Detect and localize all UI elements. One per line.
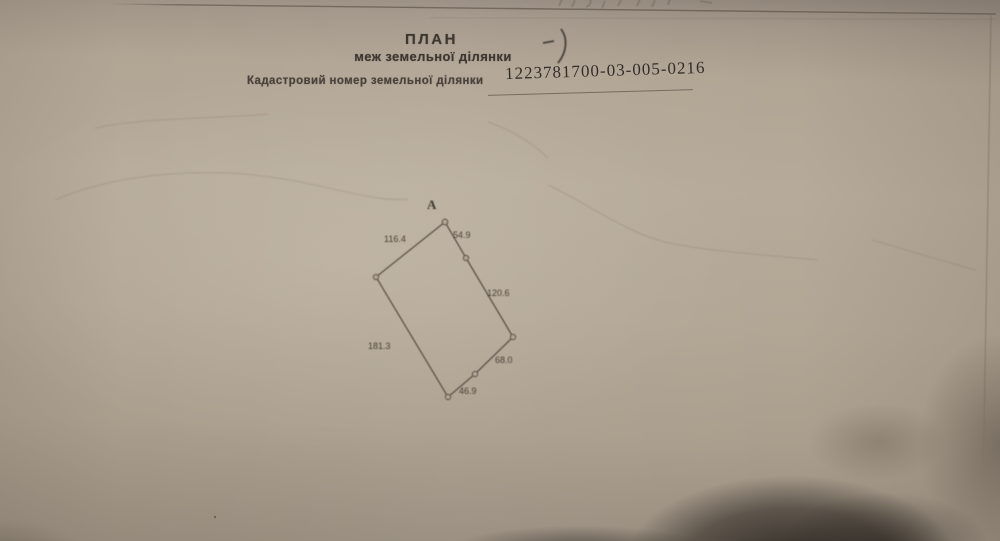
boundary-point (373, 274, 378, 279)
boundary-point (472, 371, 477, 376)
cropped-handwriting-marks (559, 0, 712, 8)
sheet-border-line-top-shadow (430, 18, 996, 20)
parcel-boundary (376, 222, 513, 397)
edge-length-label-lower-right: 68.0 (495, 355, 513, 365)
paper-crease-lines (55, 114, 976, 270)
edge-length-label-top-left: 116.4 (384, 234, 406, 244)
boundary-point (510, 334, 515, 339)
boundary-point (463, 255, 468, 260)
pen-mark (543, 29, 566, 63)
sheet-border-line-right (983, 15, 991, 490)
edge-length-label-top-right: 54.9 (453, 230, 471, 240)
paper-speck (214, 516, 216, 518)
boundary-point-a (442, 219, 448, 225)
edge-length-label-bottom: 46.9 (459, 386, 477, 396)
sheet-border-line-top (108, 4, 996, 14)
plan-drawing: А 116.4 54.9 120.6 68.0 46.9 181.3 (0, 0, 1000, 541)
photographed-land-plan-document: ПЛАН меж земельної ділянки Кадастровий н… (0, 0, 1000, 541)
boundary-point (445, 394, 450, 399)
point-a-label: А (427, 197, 437, 212)
edge-length-label-left: 181.3 (368, 341, 391, 351)
edge-length-label-right: 120.6 (487, 288, 510, 298)
